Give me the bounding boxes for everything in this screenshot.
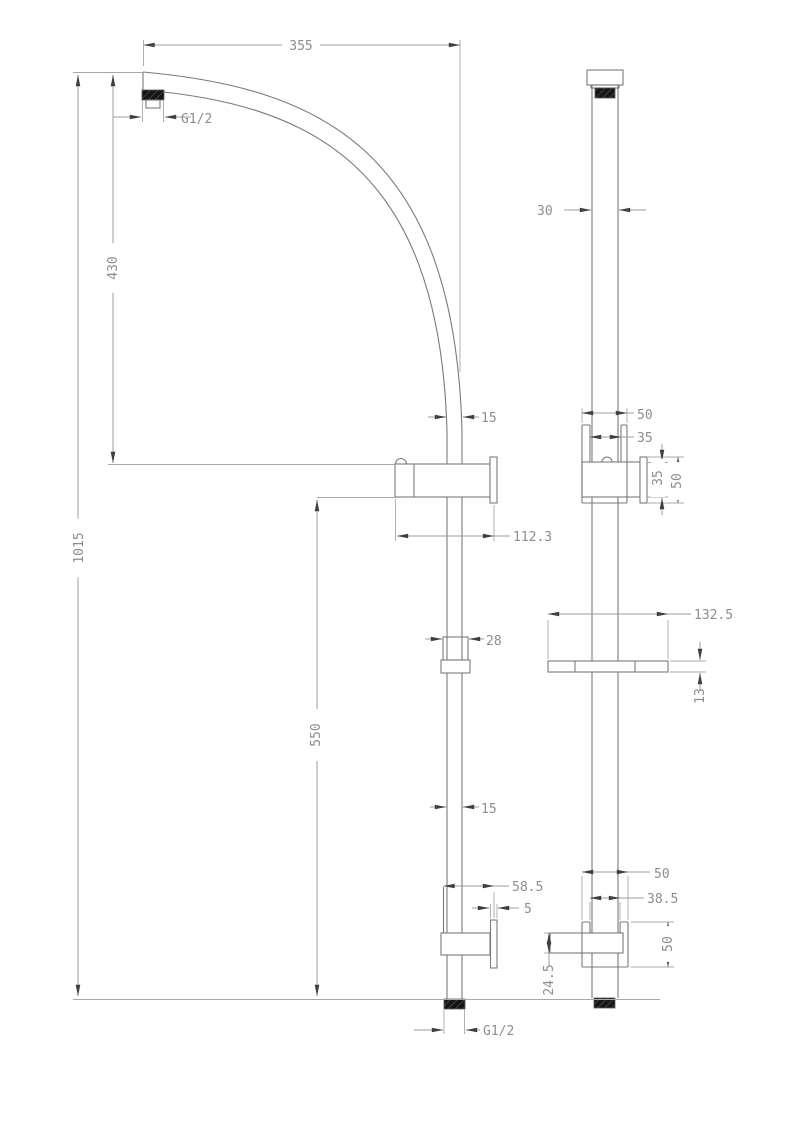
thread-fitting-bottom-icon	[444, 999, 465, 1009]
dim-rail-width-lower-label: 15	[481, 802, 497, 817]
thread-bottom-label: G1/2	[483, 1024, 514, 1039]
lower-bracket-side	[550, 922, 628, 967]
dim-upper-bracket-width-label: 50	[637, 408, 653, 423]
column	[592, 85, 618, 998]
dim-dish-thickness-label: 13	[693, 688, 708, 704]
dim-upper-slot-label: 35	[637, 431, 653, 446]
dish-mount-front	[441, 637, 470, 673]
dim-lower-bracket-length-label: 58.5	[512, 880, 543, 895]
dim-lower-rail-label: 550	[309, 723, 324, 746]
side-view	[548, 70, 668, 1008]
dim-arm-drop-label: 430	[106, 256, 121, 279]
dim-lower-bracket-width-label: 50	[654, 867, 670, 882]
upper-bracket-front	[395, 457, 497, 503]
bracket-pivot-dome-side	[602, 457, 612, 462]
extension-lines	[73, 40, 706, 1034]
dim-lower-block-height-label: 24.5	[542, 964, 557, 995]
lower-bracket-front	[441, 887, 497, 968]
thread-nipple-top	[146, 100, 160, 108]
dim-dish-length-label: 132.5	[694, 608, 733, 623]
dish-side	[548, 661, 668, 672]
column-cap	[587, 70, 623, 85]
arm-inner-curve	[143, 90, 447, 432]
dim-rail-width-upper-label: 15	[481, 411, 497, 426]
thread-fitting-top-icon	[142, 90, 164, 100]
dim-lower-slot-label: 38.5	[647, 892, 678, 907]
wall-flange-side	[640, 457, 647, 503]
dim-column-depth-label: 30	[537, 204, 553, 219]
dim-upper-plate-height-label: 50	[670, 473, 685, 489]
dimension-lines	[78, 45, 700, 1030]
dim-total-height-label: 1015	[72, 532, 87, 563]
dim-bracket-length-label: 112.3	[513, 530, 552, 545]
dim-lower-plate-height-label: 50	[661, 936, 676, 952]
rail	[447, 432, 462, 999]
front-view	[142, 72, 497, 1009]
wall-flange-lower-front	[491, 920, 498, 968]
thread-fitting-side-top-icon	[595, 88, 615, 98]
dimension-labels: 355 G1/2 430 1015 550 15 112.3 28 15 58.…	[72, 39, 733, 1039]
dim-plate-thickness-label: 5	[524, 902, 532, 917]
column-cap-lip	[591, 85, 619, 88]
bracket-pivot-dome	[396, 459, 407, 464]
dim-dish-mount-label: 28	[486, 634, 502, 649]
wall-flange-front	[490, 457, 497, 503]
technical-drawing-sheet: 355 G1/2 430 1015 550 15 112.3 28 15 58.…	[0, 0, 800, 1131]
shower-rail-drawing: 355 G1/2 430 1015 550 15 112.3 28 15 58.…	[0, 0, 800, 1131]
thread-top-label: G1/2	[181, 112, 212, 127]
dim-arm-reach-label: 355	[289, 39, 312, 54]
dim-clamp-height-label: 35	[651, 470, 666, 486]
